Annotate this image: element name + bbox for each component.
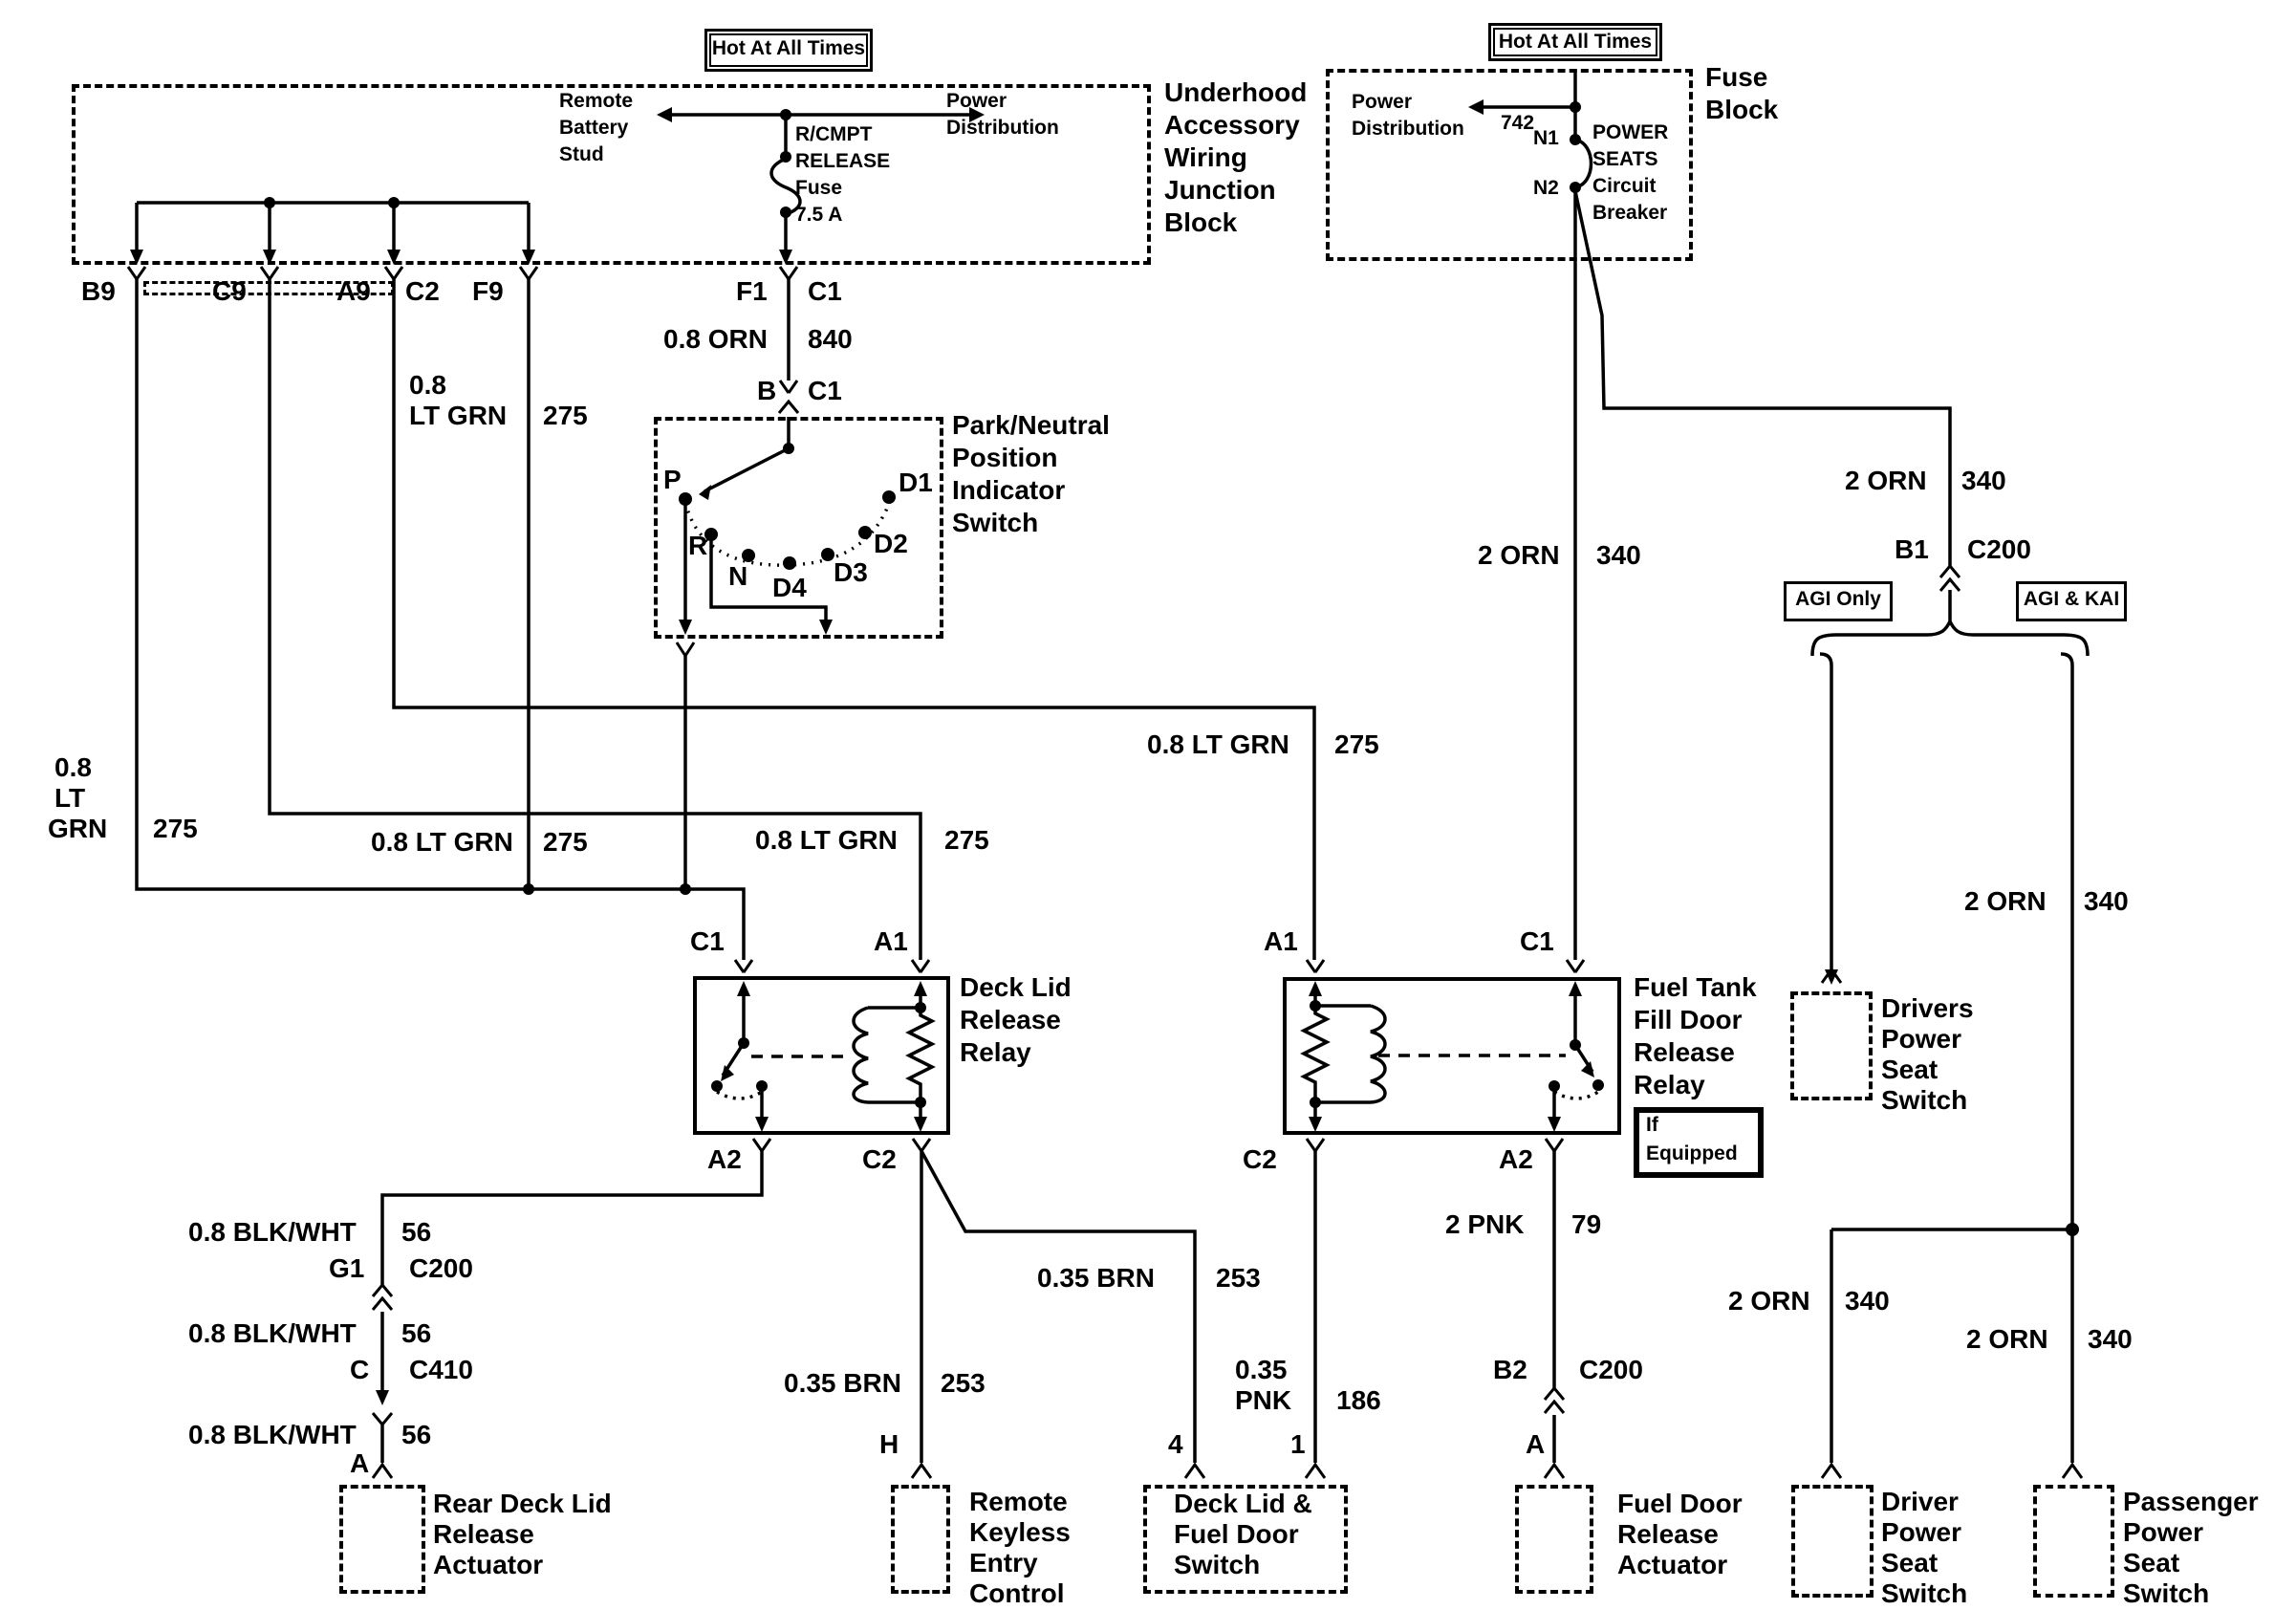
- term-n2: N2: [1533, 178, 1559, 199]
- rear-actuator-entry-icon: [373, 1465, 392, 1478]
- wire-b9-275: 275: [153, 815, 198, 842]
- deck-relay-1: Deck Lid: [960, 973, 1072, 1001]
- underhood-4: Junction: [1164, 176, 1276, 204]
- wire-rbranch-2orn: 2 ORN: [1964, 887, 2047, 915]
- power-dist-right-1: Power: [1352, 92, 1412, 113]
- wire-253-h: 253: [941, 1369, 986, 1397]
- term-c410: C410: [409, 1356, 473, 1383]
- wire-b1-2orn: 2 ORN: [1845, 467, 1927, 494]
- b-c1-chevron-icon: [779, 402, 798, 413]
- wire-f9b-ltgrn: 0.8 LT GRN: [371, 828, 513, 856]
- underhood-3: Wiring: [1164, 143, 1247, 171]
- agi-only-text: AGI Only: [1784, 589, 1893, 610]
- b-c1-connector-icon: [780, 381, 797, 393]
- term-b9: B9: [81, 277, 116, 305]
- pos-p: P: [663, 466, 682, 493]
- term-f9: F9: [472, 277, 504, 305]
- driver-sw-3: Seat: [1881, 1549, 1938, 1577]
- deck-c2-connector-icon: [913, 1139, 930, 1151]
- term-b: B: [757, 377, 776, 404]
- park-neutral-1: Park/Neutral: [952, 411, 1110, 439]
- wire-253-4: 253: [1216, 1264, 1261, 1292]
- agi-kai-text: AGI & KAI: [2016, 589, 2127, 610]
- pass-sw-2: Power: [2123, 1518, 2203, 1546]
- rcmpt-fuse-3: Fuse: [795, 178, 842, 199]
- remote-battery-stud-2: Battery: [559, 118, 628, 139]
- pos-n: N: [728, 562, 747, 590]
- rke-3: Entry: [969, 1549, 1038, 1577]
- deck-c2: C2: [862, 1145, 897, 1173]
- wire-840: 840: [808, 325, 853, 353]
- term-c1-top: C1: [808, 277, 842, 305]
- b2-c200-connector-icon: [1545, 1388, 1564, 1413]
- fd-actuator-1: Fuel Door: [1617, 1490, 1743, 1517]
- wire-rbranch-340: 340: [2084, 887, 2129, 915]
- driver-sw-4: Switch: [1881, 1579, 1967, 1607]
- deck-a2: A2: [707, 1145, 742, 1173]
- term-b2: B2: [1493, 1356, 1527, 1383]
- wiring-diagram: Hot At All TimesHot At All TimesRemoteBa…: [0, 0, 2296, 1610]
- fuel-a2: A2: [1499, 1145, 1533, 1173]
- term-c9: C9: [212, 277, 247, 305]
- fuel-c1-connector-icon: [1567, 960, 1584, 972]
- fuel-relay-4: Relay: [1634, 1071, 1705, 1099]
- fuel-relay-2: Fill Door: [1634, 1006, 1743, 1033]
- dlfd-switch-1: Deck Lid &: [1174, 1490, 1312, 1517]
- driver-entry-icon: [1822, 1465, 1841, 1478]
- drivers-sw-4: Switch: [1881, 1086, 1967, 1114]
- underhood-5: Block: [1164, 208, 1237, 236]
- pos-d3: D3: [834, 558, 868, 586]
- term-f1: F1: [736, 277, 768, 305]
- deck-relay-3: Relay: [960, 1038, 1031, 1066]
- deck-c2-4-wire: [921, 1151, 1195, 1463]
- wire-blkwht-2: 0.8 BLK/WHT: [188, 1319, 357, 1347]
- wire-rlow-2orn: 2 ORN: [1966, 1325, 2048, 1353]
- rke-4: Control: [969, 1579, 1065, 1607]
- term-c200-g1: C200: [409, 1254, 473, 1282]
- term-a-fuel: A: [1526, 1430, 1545, 1458]
- wire-2pnk: 2 PNK: [1445, 1210, 1524, 1238]
- wire-035pnk-1b: PNK: [1235, 1386, 1291, 1414]
- wire-blkwht-1: 0.8 BLK/WHT: [188, 1218, 357, 1246]
- power-dist-left-1: Power: [946, 91, 1007, 112]
- underhood-2: Accessory: [1164, 111, 1300, 139]
- park-neutral-4: Switch: [952, 509, 1038, 536]
- wire-035brn-h: 0.35 BRN: [784, 1369, 901, 1397]
- rke-2: Keyless: [969, 1518, 1071, 1546]
- wire-79: 79: [1571, 1210, 1601, 1238]
- wire-08orn: 0.8 ORN: [663, 325, 768, 353]
- wire-186: 186: [1336, 1386, 1381, 1414]
- fuel-a1-connector-icon: [1307, 960, 1324, 972]
- dlfd-entry-1-icon: [1306, 1465, 1325, 1478]
- power-seats-cb-2: SEATS: [1592, 149, 1657, 170]
- term-a-rear: A: [350, 1449, 369, 1477]
- c-c410-connector-icon: [373, 1413, 392, 1425]
- wire-a1fuel-275: 275: [1334, 730, 1379, 758]
- park-neutral-switch-box: [654, 417, 943, 639]
- fd-actuator-2: Release: [1617, 1520, 1719, 1548]
- fuel-relay-3: Release: [1634, 1038, 1735, 1066]
- term-c1-b: C1: [808, 377, 842, 404]
- fuel-door-actuator-box: [1515, 1485, 1593, 1594]
- wire-56-1: 56: [401, 1218, 431, 1246]
- pos-d4: D4: [772, 574, 807, 601]
- remote-battery-stud-1: Remote: [559, 91, 633, 112]
- power-seats-cb-1: POWER: [1592, 122, 1668, 143]
- power-seats-cb-3: Circuit: [1592, 176, 1657, 197]
- fuel-c2: C2: [1243, 1145, 1277, 1173]
- wire-f9-08: 0.8: [409, 371, 446, 399]
- fuel-a1: A1: [1264, 927, 1298, 955]
- pass-sw-1: Passenger: [2123, 1488, 2259, 1515]
- b9-connector-icon: [128, 267, 145, 279]
- fd-actuator-entry-icon: [1545, 1465, 1564, 1478]
- dlfd-switch-2: Fuel Door: [1174, 1520, 1299, 1548]
- wire-llow-2orn: 2 ORN: [1728, 1287, 1810, 1315]
- fuel-c2-connector-icon: [1307, 1139, 1324, 1151]
- if-equipped-2: Equipped: [1646, 1143, 1738, 1164]
- drivers-sw-1: Drivers: [1881, 994, 1974, 1022]
- wire-b9-grn: GRN: [48, 815, 107, 842]
- wire-56-2: 56: [401, 1319, 431, 1347]
- term-a9: A9: [336, 277, 371, 305]
- wire-f9b-275: 275: [543, 828, 588, 856]
- fuel-a2-connector-icon: [1546, 1139, 1563, 1151]
- deck-a1-connector-icon: [912, 960, 929, 972]
- wire-f9-275: 275: [543, 402, 588, 429]
- wire-f9-ltgrn: LT GRN: [409, 402, 507, 429]
- wire-b9-08: 0.8: [54, 753, 92, 781]
- term-1: 1: [1290, 1430, 1306, 1458]
- underhood-1: Underhood: [1164, 78, 1307, 106]
- rear-actuator-3: Actuator: [433, 1551, 543, 1578]
- term-g1: G1: [329, 1254, 364, 1282]
- remote-battery-stud-3: Stud: [559, 144, 604, 165]
- fuel-c1: C1: [1520, 927, 1554, 955]
- power-dist-left-2: Distribution: [946, 118, 1059, 139]
- rcmpt-fuse-2: RELEASE: [795, 151, 890, 172]
- deck-relay-2: Release: [960, 1006, 1061, 1033]
- dlfd-entry-4-icon: [1185, 1465, 1204, 1478]
- fuse-block-2: Block: [1705, 96, 1778, 123]
- if-equipped-1: If: [1646, 1115, 1658, 1136]
- park-neutral-2: Position: [952, 444, 1057, 471]
- passenger-power-seat-switch-box: [2033, 1485, 2114, 1598]
- hot-left-text: Hot At All Times: [704, 38, 873, 59]
- rcmpt-fuse-4: 7.5 A: [795, 205, 842, 226]
- fd-actuator-3: Actuator: [1617, 1551, 1727, 1578]
- term-b1: B1: [1895, 535, 1929, 563]
- rear-actuator-1: Rear Deck Lid: [433, 1490, 612, 1517]
- term-n1: N1: [1533, 128, 1559, 149]
- fuel-relay-1: Fuel Tank: [1634, 973, 1757, 1001]
- remote-keyless-entry-box: [891, 1485, 950, 1594]
- rear-actuator-2: Release: [433, 1520, 534, 1548]
- drivers-sw-3: Seat: [1881, 1055, 1938, 1083]
- dlfd-switch-3: Switch: [1174, 1551, 1260, 1578]
- power-seats-cb-4: Breaker: [1592, 203, 1667, 224]
- drivers-power-seat-switch-box: [1790, 991, 1873, 1100]
- rke-1: Remote: [969, 1488, 1068, 1515]
- pos-d2: D2: [874, 530, 908, 557]
- wire-035pnk-1a: 0.35: [1235, 1356, 1288, 1383]
- drivers-sw-2: Power: [1881, 1025, 1961, 1053]
- power-dist-right-2: Distribution: [1352, 119, 1464, 140]
- pass-sw-4: Switch: [2123, 1579, 2209, 1607]
- wire-c1fuel-340: 340: [1596, 541, 1641, 569]
- a9-connector-icon: [385, 267, 402, 279]
- wire-c1fuel-2orn: 2 ORN: [1478, 541, 1560, 569]
- wire-a1deck-ltgrn: 0.8 LT GRN: [755, 826, 898, 854]
- pass-sw-3: Seat: [2123, 1549, 2179, 1577]
- deck-c1-connector-icon: [735, 960, 752, 972]
- deck-lid-relay-box: [693, 976, 950, 1135]
- wire-b9-lt: LT: [54, 784, 85, 812]
- term-c2-top: C2: [405, 277, 440, 305]
- wire-blkwht-3: 0.8 BLK/WHT: [188, 1421, 357, 1448]
- driver-sw-1: Driver: [1881, 1488, 1959, 1515]
- fuel-tank-relay-box: [1283, 977, 1621, 1135]
- driver-power-seat-switch-box: [1791, 1485, 1874, 1598]
- wire-b1-340: 340: [1961, 467, 2006, 494]
- pos-r: R: [688, 532, 707, 559]
- f1-connector-icon: [780, 267, 797, 279]
- passenger-entry-icon: [2063, 1465, 2082, 1478]
- term-c200-b1: C200: [1967, 535, 2031, 563]
- wire-035brn-4: 0.35 BRN: [1037, 1264, 1155, 1292]
- rear-deck-lid-actuator-box: [339, 1485, 425, 1594]
- hot-right-text: Hot At All Times: [1488, 32, 1662, 53]
- f9-connector-icon: [520, 267, 537, 279]
- term-4: 4: [1168, 1430, 1183, 1458]
- deck-c1: C1: [690, 927, 725, 955]
- wire-a1deck-275: 275: [944, 826, 989, 854]
- deck-a1: A1: [874, 927, 908, 955]
- b1-c200-connector-icon: [1940, 566, 1960, 591]
- term-h: H: [879, 1430, 899, 1458]
- driver-sw-2: Power: [1881, 1518, 1961, 1546]
- rke-entry-icon: [912, 1465, 931, 1478]
- fuse-block-1: Fuse: [1705, 63, 1767, 91]
- wire-rlow-340: 340: [2088, 1325, 2133, 1353]
- c9-connector-icon: [261, 267, 278, 279]
- wire-llow-340: 340: [1845, 1287, 1890, 1315]
- wire-742: 742: [1501, 113, 1534, 134]
- pos-d1: D1: [899, 468, 933, 496]
- term-c: C: [350, 1356, 369, 1383]
- deck-a2-connector-icon: [753, 1139, 770, 1151]
- rcmpt-fuse-1: R/CMPT: [795, 124, 873, 145]
- wire-56-3: 56: [401, 1421, 431, 1448]
- wire-a1fuel-ltgrn: 0.8 LT GRN: [1147, 730, 1289, 758]
- g1-c200-connector-icon: [373, 1285, 392, 1310]
- term-c200-b2: C200: [1579, 1356, 1643, 1383]
- park-p-connector-icon: [677, 642, 694, 656]
- park-neutral-3: Indicator: [952, 476, 1065, 504]
